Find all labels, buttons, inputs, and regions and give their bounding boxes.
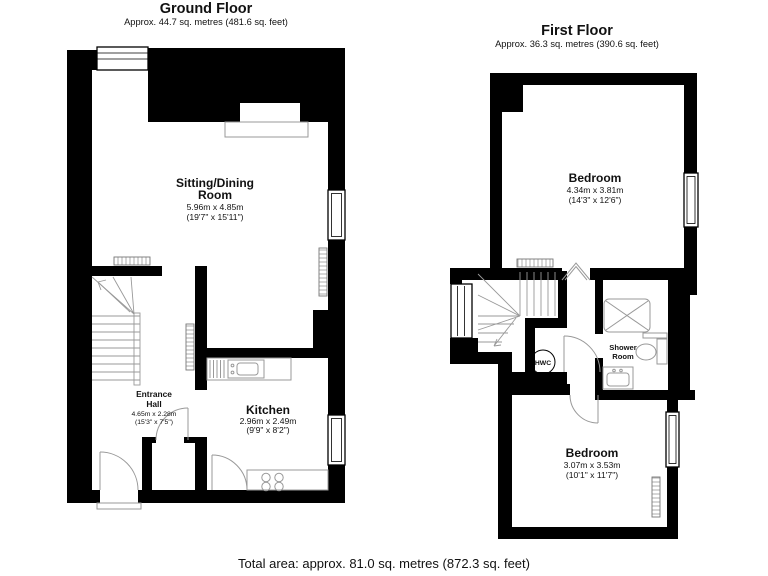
closet-top-stub xyxy=(142,437,156,443)
hob-ring xyxy=(262,482,270,490)
bedroom2-top-wall xyxy=(512,384,570,395)
hwc-label: HWC xyxy=(535,360,551,367)
ground-floor-staircase xyxy=(92,277,140,385)
shelf xyxy=(643,333,667,338)
toilet-cistern xyxy=(657,339,667,364)
total-area-text: Total area: approx. 81.0 sq. metres (872… xyxy=(238,556,530,571)
right-wall-lower xyxy=(667,400,678,412)
window xyxy=(666,412,679,467)
hwc-top-wall xyxy=(525,318,567,328)
stairwell-left-wall xyxy=(450,268,462,284)
floorplan-drawing: Ground Floor Approx. 44.7 sq. metres (48… xyxy=(0,0,768,576)
toilet-bowl xyxy=(636,344,656,360)
landing-wall xyxy=(505,372,567,384)
ground-floor-labels: Sitting/Dining Room 5.96m x 4.85m (19'7"… xyxy=(132,176,297,435)
entrance-hall-label: Entrance xyxy=(136,389,172,399)
landing-door xyxy=(564,336,600,372)
sitting-room-label-2: Room xyxy=(198,188,232,202)
entrance-hall-dims-metric: 4.65m x 2.28m xyxy=(132,411,177,418)
sitting-room-dims-metric: 5.96m x 4.85m xyxy=(187,202,244,212)
radiator xyxy=(517,259,553,267)
hob-ring xyxy=(262,473,270,481)
radiator xyxy=(652,477,660,517)
hwc-left-wall xyxy=(525,328,535,378)
window xyxy=(97,47,148,70)
basin-bowl xyxy=(607,373,629,386)
entrance-hall-label-2: Hall xyxy=(146,399,161,409)
kitchen-label: Kitchen xyxy=(246,403,290,417)
hob-ring xyxy=(275,473,283,481)
radiator xyxy=(186,324,194,370)
kitchen-dims-imperial: (9'9" x 8'2") xyxy=(246,425,289,435)
shower-tray xyxy=(604,299,650,332)
sink-bowl xyxy=(237,363,258,375)
hob-ring xyxy=(275,482,283,490)
bottom-wall xyxy=(138,490,345,503)
stair-treads xyxy=(92,316,140,380)
door-sill xyxy=(97,503,141,509)
hall-divider-wall xyxy=(92,266,162,276)
basin xyxy=(603,367,633,389)
closet-left-wall xyxy=(142,437,152,490)
bedroom-top-label: Bedroom xyxy=(569,171,622,185)
bedroom-bottom-dims-imperial: (10'1" x 11'7") xyxy=(566,470,618,480)
window xyxy=(684,173,698,227)
tap xyxy=(620,369,623,372)
radiator xyxy=(319,248,327,296)
tap xyxy=(231,371,234,374)
left-wall xyxy=(490,85,502,268)
entrance-hall-dims-imperial: (15'3" x 7'5") xyxy=(135,419,173,426)
window xyxy=(328,415,345,465)
top-right-wall-mass xyxy=(148,48,345,190)
toilet xyxy=(636,339,667,364)
top-wall-stub xyxy=(92,50,97,70)
window xyxy=(451,284,472,338)
front-door xyxy=(97,452,141,509)
bedroom-bottom-wall xyxy=(452,268,562,280)
kitchen-divider-wall xyxy=(195,266,207,390)
kitchen-hob-counter xyxy=(247,470,328,491)
first-floor-title: First Floor xyxy=(541,23,613,39)
ground-floor-title: Ground Floor xyxy=(160,1,253,17)
closet-top-stub xyxy=(184,437,207,443)
shower-bottom-wall xyxy=(595,390,695,400)
hearth-outline xyxy=(225,122,308,137)
kitchen-door xyxy=(212,455,247,490)
drainer-hatch xyxy=(210,360,224,378)
stair-side-wall xyxy=(558,271,567,318)
ground-floor-subtitle: Approx. 44.7 sq. metres (481.6 sq. feet) xyxy=(124,17,288,27)
left-wall xyxy=(67,50,92,503)
right-wall-lower xyxy=(667,467,678,527)
tap xyxy=(613,369,616,372)
shower-left-wall xyxy=(595,280,603,334)
stair-direction-arrow xyxy=(494,318,516,346)
sitting-room-dims-imperial: (19'7" x 15'11") xyxy=(187,212,244,222)
kitchen-top-wall xyxy=(207,348,328,358)
shower-room-label-2: Room xyxy=(612,352,634,361)
shower-room-label: Shower xyxy=(609,343,636,352)
right-wall xyxy=(328,358,345,415)
right-wall xyxy=(328,240,345,310)
bedroom-bottom-dims-metric: 3.07m x 3.53m xyxy=(564,460,621,470)
bedroom-top-dims-imperial: (14'3" x 12'6") xyxy=(569,195,622,205)
first-floor-subtitle: Approx. 36.3 sq. metres (390.6 sq. feet) xyxy=(495,39,659,49)
ground-floor-plan: Ground Floor Approx. 44.7 sq. metres (48… xyxy=(67,1,345,509)
first-floor-plan: First Floor Approx. 36.3 sq. metres (390… xyxy=(450,23,698,539)
bedroom-top-dims-metric: 4.34m x 3.81m xyxy=(567,185,624,195)
floorplan-page: Ground Floor Approx. 44.7 sq. metres (48… xyxy=(0,0,768,576)
bottom-wall xyxy=(67,490,100,503)
tap xyxy=(231,364,234,367)
first-floor-doors xyxy=(562,263,600,423)
window xyxy=(328,190,345,240)
bottom-wall xyxy=(498,527,678,539)
bedroom2-door xyxy=(570,395,598,423)
bedroom-bottom-label: Bedroom xyxy=(566,446,619,460)
top-left-step xyxy=(502,85,523,112)
shower-right-wall xyxy=(668,280,690,400)
first-floor-staircase xyxy=(478,272,555,346)
stairwell-bottom-wall xyxy=(450,352,512,364)
first-floor-windows xyxy=(451,173,698,467)
closet-right-wall xyxy=(195,437,207,490)
bedroom-bottom-wall xyxy=(590,268,697,280)
top-wall xyxy=(490,73,697,85)
kitchen-sink-counter xyxy=(207,358,291,380)
right-wall xyxy=(684,85,697,173)
left-wall-lower xyxy=(498,364,512,539)
radiator xyxy=(114,257,150,265)
